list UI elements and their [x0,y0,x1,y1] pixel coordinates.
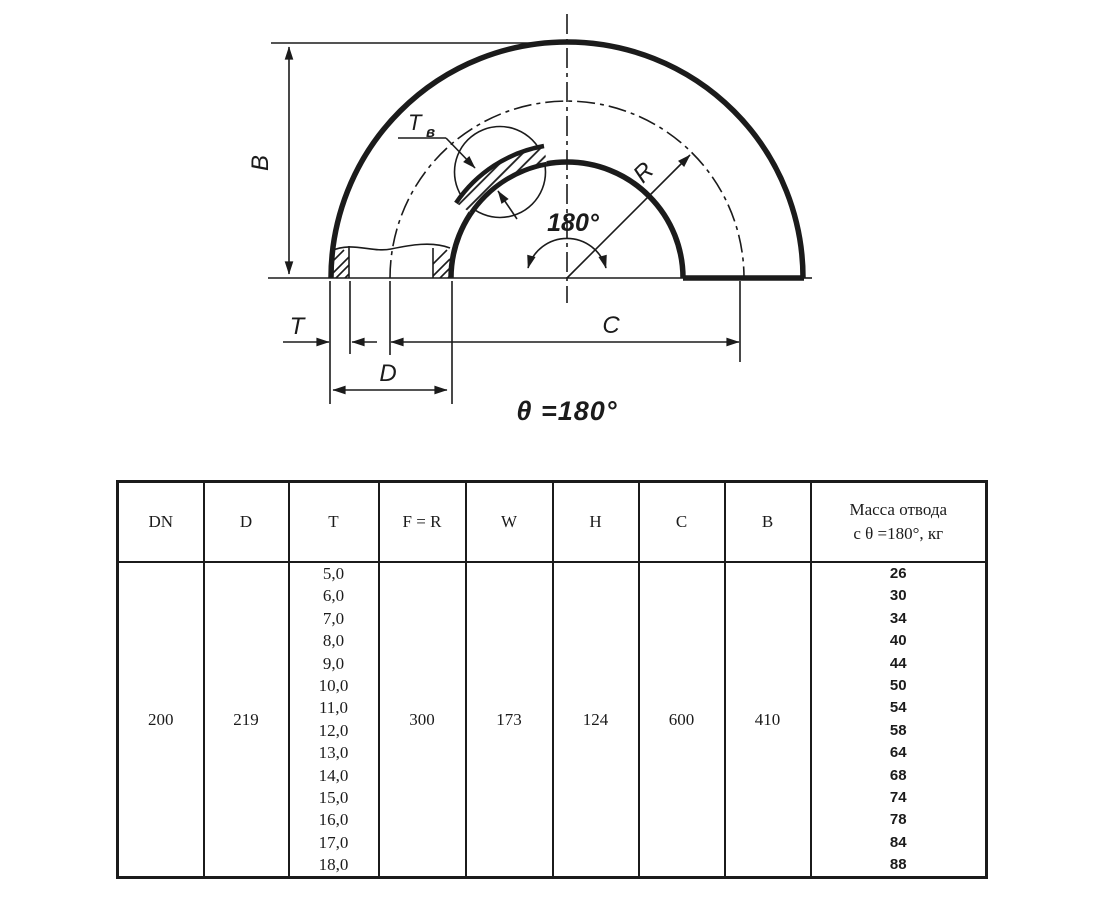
mass-values-list: 2630344044505458646874788488 [812,563,986,876]
col-header-f-r: F = R [379,482,466,563]
cell-line: 50 [812,675,986,697]
cell-line: 74 [812,787,986,809]
cell-line: 12,0 [290,720,378,742]
mass-header-line1: Масса отвода [812,498,986,522]
cell-line: 64 [812,742,986,764]
cell-w: 173 [466,562,553,878]
cell-t: 5,06,07,08,09,010,011,012,013,014,015,01… [289,562,379,878]
col-header-w: W [466,482,553,563]
cell-line: 5,0 [290,563,378,585]
right-wall-hatch [433,250,450,278]
cell-line: 88 [812,854,986,876]
label-b: B [247,155,274,171]
cell-line: 44 [812,653,986,675]
cell-line: 18,0 [290,854,378,876]
label-c: C [602,312,620,339]
cell-c: 600 [639,562,725,878]
cell-line: 15,0 [290,787,378,809]
t-values-list: 5,06,07,08,09,010,011,012,013,014,015,01… [290,563,378,876]
tv-leader-arrow [446,138,475,168]
cell-line: 84 [812,832,986,854]
cell-line: 58 [812,720,986,742]
cell-line: 78 [812,809,986,831]
tv-lower-arrow [498,191,517,219]
cell-line: 7,0 [290,608,378,630]
cell-d: 219 [204,562,289,878]
cell-line: 30 [812,585,986,607]
cell-line: 6,0 [290,585,378,607]
cell-line: 26 [812,563,986,585]
col-header-dn: DN [118,482,204,563]
theta-caption: θ =180° [516,396,617,426]
cell-line: 54 [812,697,986,719]
cell-line: 68 [812,765,986,787]
mass-header-line2: с θ =180°, кг [812,522,986,546]
cell-line: 13,0 [290,742,378,764]
label-angle-180: 180° [547,209,600,237]
cell-line: 16,0 [290,809,378,831]
cell-line: 17,0 [290,832,378,854]
cell-line: 10,0 [290,675,378,697]
label-t: T [290,313,307,340]
label-t-wall-text: Tв [408,110,435,141]
cell-h: 124 [553,562,639,878]
cell-line: 34 [812,608,986,630]
cell-line: 8,0 [290,630,378,652]
col-header-h: H [553,482,639,563]
dimensions-table: DN D T F = R W H C B Масса отвода с θ =1… [116,480,988,879]
cell-mass: 2630344044505458646874788488 [811,562,987,878]
cell-line: 40 [812,630,986,652]
col-header-b: B [725,482,811,563]
cell-line: 11,0 [290,697,378,719]
col-header-mass: Масса отвода с θ =180°, кг [811,482,987,563]
cell-dn: 200 [118,562,204,878]
table-header-row: DN D T F = R W H C B Масса отвода с θ =1… [118,482,987,563]
table-data-row: 200 219 5,06,07,08,09,010,011,012,013,01… [118,562,987,878]
elbow-drawing: B T D C R 180° Tв θ =180° [0,0,1100,465]
col-header-d: D [204,482,289,563]
label-d: D [379,360,396,387]
col-header-t: T [289,482,379,563]
cell-line: 9,0 [290,653,378,675]
page: B T D C R 180° Tв θ =180° DN D T F = R W… [0,0,1100,900]
cell-f-r: 300 [379,562,466,878]
col-header-c: C [639,482,725,563]
cell-b: 410 [725,562,811,878]
cell-line: 14,0 [290,765,378,787]
